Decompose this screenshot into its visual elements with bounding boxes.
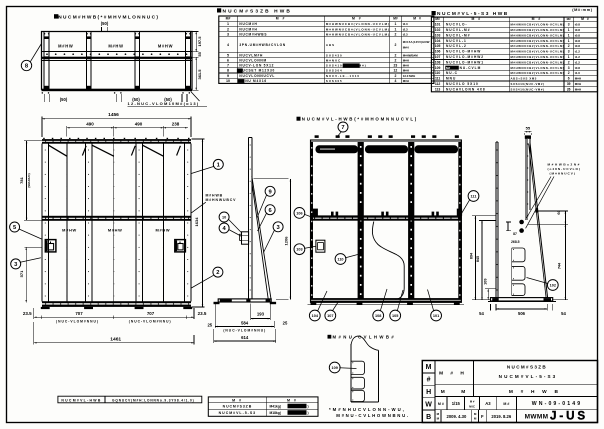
svg-text:54: 54 [561,311,566,316]
svg-text:109: 109 [483,279,487,285]
svg-text:193: 193 [257,312,265,317]
svg-text:1206: 1206 [283,236,288,246]
svg-text:NUCSET M12X30: NUCSET M12X30 [239,69,275,73]
svg-text:SUS305: SUS305 [326,79,343,83]
svg-text:(M#:mm): (M#:mm) [572,7,593,12]
svg-text:NUCM#VL-5-S3: NUCM#VL-5-S3 [499,374,558,379]
svg-text:t1.2: t1.2 [575,50,581,54]
svg-text:NUC: NUC [469,404,475,408]
svg-text:M#H: M#H [403,69,409,73]
svg-text:M#HWNUCB#(VLONN-UCVLM): M#HWNUCB#(VLONN-UCVLM) [511,50,565,54]
svg-text:M#HWNUCB#(VLONN-UCVLM): M#HWNUCB#(VLONN-UCVLM) [511,55,565,59]
svg-text:26: 26 [567,87,571,91]
svg-text:506: 506 [518,311,526,316]
svg-text:25: 25 [207,323,212,328]
svg-text:M #: M # [232,398,243,402]
svg-text:SUS304: SUS304 [326,69,343,73]
svg-text:(o48N-UCVLO): (o48N-UCVLO) [548,167,581,171]
svg-text:25: 25 [283,321,288,326]
svg-text:109: 109 [332,366,338,370]
svg-text:MNU: MNU [446,77,456,81]
svg-text:M41kg(: M41kg( [270,405,282,409]
svg-text:894: 894 [469,252,473,259]
svg-text:NUCM#S3ZB HWB: NUCM#S3ZB HWB [223,8,292,14]
svg-text:2: 2 [227,27,229,31]
svg-text:M#HW: M#HW [108,43,123,48]
svg-text:M#HW: M#HW [158,43,173,48]
svg-text:105: 105 [392,314,398,318]
svg-text:M: M [461,389,465,395]
svg-text:2: 2 [395,53,397,57]
svg-text:M#HWNUCB#(VLONN-UCVLM): M#HWNUCB#(VLONN-UCVLM) [326,32,390,36]
svg-text:571: 571 [19,270,24,277]
svg-text:NUCM#S3ZB: NUCM#S3ZB [507,365,547,370]
svg-text:1: 1 [568,55,570,59]
svg-text:M#NUC: M#NUC [326,58,341,62]
svg-text:361.5: 361.5 [197,69,202,80]
svg-text:NUCVLO-M#HW2: NUCVLO-M#HW2 [446,55,484,59]
svg-text:106: 106 [296,211,302,215]
svg-text:M#HWNUCB#(VLONN-UCVLM): M#HWNUCB#(VLONN-UCVLM) [511,71,565,75]
svg-text:M #: M # [532,17,542,21]
svg-text:M#: M# [435,17,440,21]
svg-text:NUCV-LON 5X12: NUCV-LON 5X12 [239,64,274,68]
svg-text:M #: M # [413,17,422,21]
svg-text:108: 108 [375,314,381,318]
svg-text:60: 60 [557,210,561,214]
svg-text:102: 102 [550,283,556,287]
svg-text:ABS+SUS XM5: ABS+SUS XM5 [511,77,537,81]
svg-text:H: H [426,389,431,396]
svg-text:584: 584 [241,321,249,326]
svg-text:M #: M # [287,398,298,402]
svg-text:106: 106 [435,50,441,54]
svg-text:NUCVLO 5X10: NUCVLO 5X10 [446,82,479,86]
svg-text:6: 6 [227,58,229,62]
svg-text:111: 111 [471,194,477,198]
svg-text:W: W [425,401,432,408]
svg-text:M#15A(125V)HNW: M#15A(125V)HNW [403,40,430,44]
svg-text:110: 110 [337,257,343,261]
svg-text:NUCM#VL-5-S3: NUCM#VL-5-S3 [219,411,256,415]
svg-text:M#HWNUCB#(VLONN-UCVLM): M#HWNUCB#(VLONN-UCVLM) [326,22,390,26]
svg-text:NUCM#VL-HWB(*#MHOMNNUCVL): NUCM#VL-HWB(*#MHOMNNUCVL) [302,117,418,122]
svg-text:NUCVL-M#: NUCVL-M# [446,33,470,37]
svg-text:M#NU-CVLHWB#: M#NU-CVLHWB# [333,335,397,340]
svg-text:M #: M # [471,17,481,21]
svg-text:7: 7 [227,64,229,68]
svg-text:#: # [427,377,431,384]
svg-text:(NUC-VLOM#NNU): (NUC-VLOM#NNU) [56,319,99,323]
svg-text:M#HW: M#HW [62,228,77,233]
svg-text:NUCM#VL-HWB: NUCM#VL-HWB [61,398,101,402]
svg-text:NUCVL-1: NUCVL-1 [446,39,467,43]
svg-text:SUS410(NUC-VM#): SUS410(NUC-VM#) [511,82,545,86]
svg-text:NUCVL-2: NUCVL-2 [446,44,467,48]
svg-text:t0.8: t0.8 [575,23,581,27]
svg-text:t1.2: t1.2 [575,60,581,64]
svg-text:NUCVLONNM: NUCVLONNM [239,58,266,62]
svg-text:M#H: M#H [575,87,581,91]
svg-text:107: 107 [435,55,441,59]
svg-text:107: 107 [327,314,333,318]
svg-text:2: 2 [568,60,570,64]
svg-text:NUCAVLONN 4X8: NUCAVLONN 4X8 [446,87,486,91]
svg-text:(NUC-VLOM#NNU): (NUC-VLOM#NNU) [129,319,172,323]
svg-text:101: 101 [435,23,441,27]
svg-text:M#HWB#M: M#HWB#M [403,53,419,57]
svg-text:M#H: M#H [403,79,409,83]
svg-text:GQNUCV(M#H:LONNNo.9.3Y98.4/1.0: GQNUCV(M#H:LONNNo.9.3Y98.4/1.0) [112,398,195,402]
svg-text:105: 105 [435,44,441,48]
svg-text:1: 1 [568,28,570,32]
svg-text:110: 110 [435,71,441,75]
svg-text:M#H: M#H [575,77,581,81]
svg-text:t2.3: t2.3 [403,27,408,31]
svg-text:2: 2 [568,44,570,48]
svg-text:J-US: J-US [550,409,588,422]
svg-text:3: 3 [227,32,229,36]
svg-text:3: 3 [568,66,570,70]
svg-text:M#: M# [226,17,231,21]
svg-text:M#HWNUCB#(VLONN-UCVLM): M#HWNUCB#(VLONN-UCVLM) [511,44,565,48]
svg-text:NUCM#HWBS: NUCM#HWBS [239,32,267,36]
svg-text:(NUC-VLOM#NNU): (NUC-VLOM#NNU) [223,329,266,333]
svg-text:109: 109 [435,66,441,70]
svg-text:M#HWBx2N#: M#HWBx2N# [548,162,581,166]
svg-text:707: 707 [75,311,83,316]
svg-text:55: 55 [526,126,531,131]
svg-text:490: 490 [86,121,94,126]
svg-text:ABS: ABS [326,43,335,47]
svg-text:NUCVLO-M#HW: NUCVLO-M#HW [446,50,481,54]
svg-text:1: 1 [395,22,397,26]
svg-text:M #: M # [352,17,362,21]
svg-text:NUCVLO-M#HW1: NUCVLO-M#HW1 [446,60,484,64]
svg-text:10: 10 [226,79,230,83]
svg-text:5: 5 [227,53,229,57]
svg-text:t0.8: t0.8 [575,33,581,37]
svg-text:1634: 1634 [194,217,199,227]
svg-text:2: 2 [216,270,219,276]
svg-text:t1.0: t1.0 [575,71,581,75]
svg-text:4: 4 [395,79,397,83]
svg-text:54: 54 [479,311,484,316]
svg-text:M: M [441,389,445,395]
svg-text:113: 113 [435,87,441,91]
svg-text:2: 2 [395,58,397,62]
svg-text:NUCVLONNUCVL: NUCVLONNUCVL [239,74,275,78]
svg-text:3: 3 [568,23,570,27]
svg-text:39: 39 [567,82,571,86]
svg-text:104: 104 [435,39,441,43]
svg-text:614: 614 [241,335,249,340]
svg-text:102: 102 [435,28,441,32]
svg-text:NUCM#H: NUCM#H [239,27,257,31]
svg-text:t0.8: t0.8 [575,28,581,32]
svg-text:t1.2: t1.2 [575,55,581,59]
svg-text:103: 103 [435,33,441,37]
svg-text:(M#HNUC): (M#HNUC) [27,173,31,187]
svg-text:*M#NHUCVLONN-WU,: *M#NHUCVLONN-WU, [329,407,406,412]
svg-text:104: 104 [312,314,319,318]
svg-text:12-NUC-VLOM10M#(o13): 12-NUC-VLOM10M#(o13) [128,101,200,106]
svg-text:B: B [426,414,431,421]
svg-text:268.5: 268.5 [511,240,520,244]
svg-text:103: 103 [296,248,302,252]
svg-text:t0.8: t0.8 [575,66,581,70]
svg-text:10: 10 [222,215,226,219]
svg-text:2: 2 [395,74,397,78]
svg-text:SUS430: SUS430 [326,53,343,57]
svg-text:): ) [308,411,309,415]
svg-text:M#HWNUCB#(VLONN-UCVLM): M#HWNUCB#(VLONN-UCVLM) [511,33,565,37]
svg-text:MWMM: MWMM [525,414,549,421]
svg-text:1: 1 [395,27,397,31]
svg-text:781: 781 [19,176,24,183]
svg-text:111: 111 [435,77,440,81]
svg-text:t2.3: t2.3 [403,22,408,26]
svg-text:M #: M # [438,402,444,406]
svg-text:M #: M # [503,402,509,406]
svg-text:): ) [308,405,309,409]
svg-text:23.5: 23.5 [23,311,32,316]
svg-text:M#HW: M#HW [58,43,73,48]
svg-text:M #: M # [581,17,590,21]
svg-text:M18kg(: M18kg( [270,411,282,415]
svg-text:23: 23 [394,64,398,68]
svg-text:3: 3 [568,50,570,54]
svg-text:M#HWNUCB#(VLONN-UCVLM): M#HWNUCB#(VLONN-UCVLM) [326,27,390,31]
svg-text:1: 1 [568,33,570,37]
svg-text:1461: 1461 [110,337,121,343]
svg-text:2019. 8.26: 2019. 8.26 [491,414,511,419]
svg-text:3PN-UM#HWB#CVLON: 3PN-UM#HWB#CVLON [239,43,286,47]
svg-text:M#HWNUCB#(VLONN-UCVLM): M#HWNUCB#(VLONN-UCVLM) [511,39,565,43]
svg-text:M#HNWUBCV: M#HNWUBCV [206,198,237,202]
svg-text:M#H: M#H [403,45,409,49]
svg-text:(M#HNUCV): (M#HNUCV) [550,171,576,175]
svg-text:23.5: 23.5 [198,311,207,316]
svg-text:238: 238 [172,121,180,126]
svg-text:1/15: 1/15 [452,401,461,406]
svg-text:■NUCM#HWB(*#MHVMLONNUC): ■NUCM#HWB(*#MHVMLONNUC) [54,15,159,21]
svg-text:t2.3: t2.3 [403,32,408,36]
svg-text:2: 2 [568,71,570,75]
svg-text:(50): (50) [60,97,68,102]
svg-text:1: 1 [227,22,229,26]
svg-text:NUCVLO-: NUCVLO- [446,23,468,27]
svg-text:8: 8 [227,69,229,73]
svg-text:F: F [481,414,484,419]
svg-text:M#: M# [393,17,398,21]
svg-text:t0.8: t0.8 [575,44,581,48]
svg-text:4: 4 [227,43,229,47]
svg-text:M#HWNUCB#(VLONN-UCVLM): M#HWNUCB#(VLONN-UCVLM) [511,23,565,27]
svg-text:NUCVL-M#: NUCVL-M# [446,28,470,32]
svg-text:M#NU-CVLHOWNBNU.: M#NU-CVLHOWNBNU. [336,413,410,418]
svg-text:WN-09-0149: WN-09-0149 [532,401,582,407]
svg-text:NUCM#S3ZB: NUCM#S3ZB [223,405,253,409]
svg-text:NUCM#H: NUCM#H [239,22,257,26]
svg-text:A3: A3 [485,401,491,406]
svg-text:M#HWNUCB#(VLONN-UCVLM): M#HWNUCB#(VLONN-UCVLM) [511,60,565,64]
svg-text:M#: M# [446,66,450,70]
svg-text:744: 744 [557,262,561,269]
svg-text:NU-CVLM: NU-CVLM [460,66,482,70]
svg-text:108: 108 [435,60,441,64]
svg-text:13.0 M#H: 13.0 M#H [403,74,416,78]
svg-text:M#HW: M#HW [156,228,171,233]
svg-text:6: 6 [568,77,570,81]
svg-text:M # H W B: M # H W B [509,389,561,395]
svg-text:M#HWNUCB#(VLONN-UCVLM): M#HWNUCB#(VLONN-UCVLM) [511,28,565,32]
svg-text:M #: M # [470,399,475,403]
svg-text:M#H: M#H [403,64,409,68]
svg-text:M: M [426,364,432,371]
svg-text:t0.8: t0.8 [575,39,581,43]
svg-text:1: 1 [568,39,570,43]
svg-text:NUCV-LE--1010: NUCV-LE--1010 [326,74,360,78]
svg-text:SUS410(NUC-VM#): SUS410(NUC-VM#) [511,87,545,91]
svg-text:845: 845 [476,256,480,262]
svg-text:112: 112 [435,82,441,86]
svg-text:197.5: 197.5 [197,36,202,47]
svg-text:NU-C: NU-C [446,71,458,75]
svg-text:2: 2 [395,43,397,47]
svg-text:M # H: M # H [439,370,467,376]
svg-text:M #: M # [276,17,286,21]
svg-text:87: 87 [513,232,517,236]
svg-text:(50): (50) [101,21,109,26]
svg-text:M#HW: M#HW [108,228,123,233]
svg-text:M#H: M#H [575,82,581,86]
svg-text:2009. 4.30: 2009. 4.30 [447,414,467,419]
svg-text:NUCVLM#H: NUCVLM#H [239,53,263,57]
svg-text:M#HWNUCB#(VLONN-UCVLM): M#HWNUCB#(VLONN-UCVLM) [511,66,565,70]
svg-text:490: 490 [135,121,143,126]
svg-text:M#: M# [567,17,571,21]
svg-text:2: 2 [395,32,397,36]
svg-text:101: 101 [433,314,439,318]
svg-text:55: 55 [197,51,202,56]
svg-text:M#HWB: M#HWB [206,193,223,197]
svg-text:M#H: M#H [403,58,409,62]
svg-text:1456: 1456 [108,112,119,118]
svg-text:7: 7 [341,125,344,131]
svg-text:9: 9 [227,74,229,78]
svg-text:12: 12 [394,69,398,73]
svg-text:707: 707 [147,311,155,316]
